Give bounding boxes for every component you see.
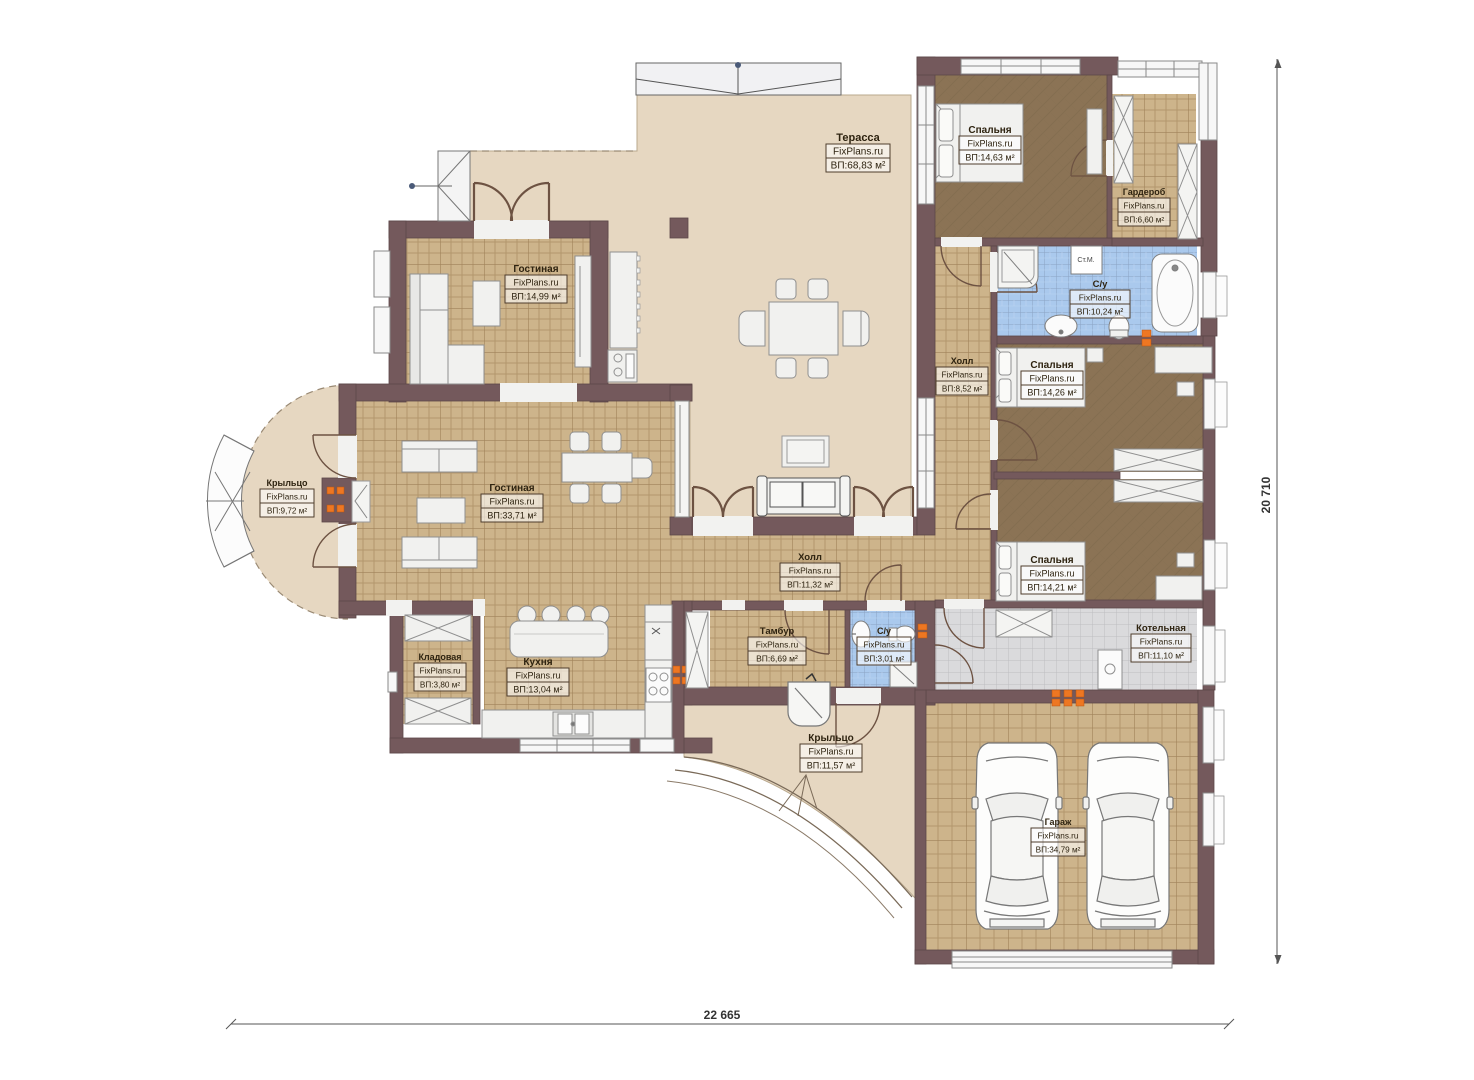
svg-text:Кладовая: Кладовая: [418, 652, 461, 662]
svg-text:FixPlans.ru: FixPlans.ru: [808, 747, 853, 757]
svg-text:Крыльцо: Крыльцо: [267, 478, 308, 488]
svg-text:FixPlans.ru: FixPlans.ru: [967, 139, 1012, 149]
svg-text:FixPlans.ru: FixPlans.ru: [1029, 374, 1074, 384]
svg-text:С/у: С/у: [1093, 279, 1109, 290]
svg-text:FixPlans.ru: FixPlans.ru: [1140, 637, 1183, 647]
svg-text:FixPlans.ru: FixPlans.ru: [1079, 293, 1122, 303]
svg-text:Котельная: Котельная: [1136, 623, 1186, 634]
svg-text:ВП:11,32 м²: ВП:11,32 м²: [787, 580, 833, 590]
svg-text:FixPlans.ru: FixPlans.ru: [420, 667, 461, 676]
svg-text:FixPlans.ru: FixPlans.ru: [267, 493, 308, 502]
svg-text:ВП:6,69 м²: ВП:6,69 м²: [756, 654, 798, 664]
svg-text:Холл: Холл: [951, 356, 974, 366]
svg-text:FixPlans.ru: FixPlans.ru: [1124, 202, 1165, 211]
svg-text:ВП:10,24 м²: ВП:10,24 м²: [1077, 307, 1124, 317]
svg-text:ВП:14,26 м²: ВП:14,26 м²: [1027, 388, 1076, 398]
svg-text:FixPlans.ru: FixPlans.ru: [942, 371, 983, 380]
svg-text:ВП:33,71 м²: ВП:33,71 м²: [487, 511, 536, 521]
svg-text:Гардероб: Гардероб: [1123, 187, 1166, 197]
svg-text:ВП:3,01 м²: ВП:3,01 м²: [864, 655, 904, 664]
svg-text:Ст.М.: Ст.М.: [1077, 257, 1094, 264]
svg-text:Терасса: Терасса: [836, 132, 880, 144]
svg-text:Гостиная: Гостиная: [513, 264, 558, 275]
svg-text:ВП:68,83 м²: ВП:68,83 м²: [831, 161, 886, 172]
svg-text:ВП:8,52 м²: ВП:8,52 м²: [942, 385, 982, 394]
svg-text:FixPlans.ru: FixPlans.ru: [1029, 569, 1074, 579]
svg-text:ВП:14,99 м²: ВП:14,99 м²: [511, 292, 560, 302]
svg-text:Кухня: Кухня: [523, 657, 552, 668]
svg-text:20 710: 20 710: [1259, 476, 1273, 513]
svg-text:ВП:11,10 м²: ВП:11,10 м²: [1138, 651, 1184, 661]
svg-text:FixPlans.ru: FixPlans.ru: [864, 641, 905, 650]
svg-text:ВП:11,57 м²: ВП:11,57 м²: [807, 761, 856, 771]
svg-text:ВП:9,72 м²: ВП:9,72 м²: [267, 507, 307, 516]
svg-text:Крыльцо: Крыльцо: [808, 733, 854, 744]
svg-text:FixPlans.ru: FixPlans.ru: [515, 671, 560, 681]
svg-text:ВП:3,80 м²: ВП:3,80 м²: [420, 681, 460, 690]
svg-text:ВП:14,21 м²: ВП:14,21 м²: [1027, 583, 1076, 593]
svg-text:FixPlans.ru: FixPlans.ru: [513, 278, 558, 288]
svg-text:Спальня: Спальня: [1030, 555, 1073, 566]
svg-text:FixPlans.ru: FixPlans.ru: [833, 147, 883, 158]
svg-text:ВП:14,63 м²: ВП:14,63 м²: [965, 153, 1014, 163]
svg-text:ВП:34,79 м²: ВП:34,79 м²: [1036, 846, 1081, 855]
svg-text:С/у: С/у: [877, 626, 891, 636]
svg-text:22 665: 22 665: [704, 1008, 741, 1022]
svg-text:FixPlans.ru: FixPlans.ru: [789, 566, 832, 576]
svg-text:Гараж: Гараж: [1045, 817, 1072, 827]
svg-text:Гостиная: Гостиная: [489, 483, 534, 494]
svg-text:ВП:13,04 м²: ВП:13,04 м²: [513, 685, 562, 695]
svg-text:Спальня: Спальня: [968, 125, 1011, 136]
svg-text:FixPlans.ru: FixPlans.ru: [489, 497, 534, 507]
svg-text:ВП:6,60 м²: ВП:6,60 м²: [1124, 216, 1164, 225]
svg-text:FixPlans.ru: FixPlans.ru: [1038, 832, 1079, 841]
svg-text:Холл: Холл: [798, 552, 822, 563]
svg-text:Тамбур: Тамбур: [760, 626, 795, 637]
svg-text:Спальня: Спальня: [1030, 360, 1073, 371]
svg-text:FixPlans.ru: FixPlans.ru: [756, 640, 799, 650]
